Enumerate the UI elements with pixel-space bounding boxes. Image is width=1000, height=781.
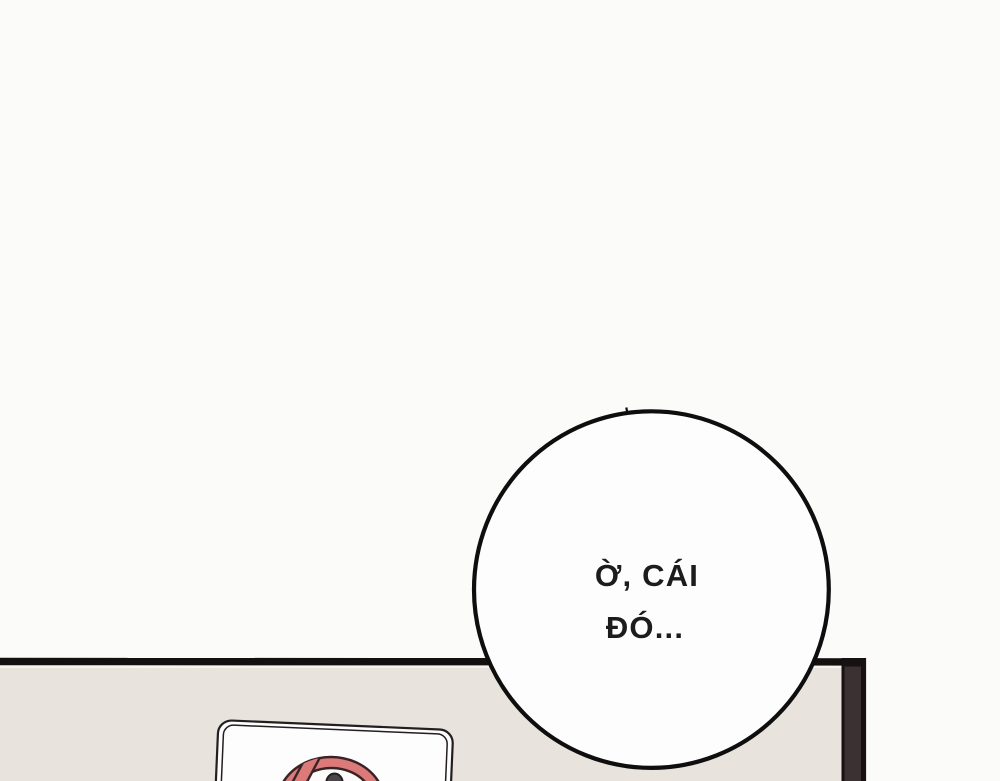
svg-text:ĐÓ...: ĐÓ... [606, 609, 684, 645]
svg-text:Ờ, CÁI: Ờ, CÁI [595, 557, 699, 593]
